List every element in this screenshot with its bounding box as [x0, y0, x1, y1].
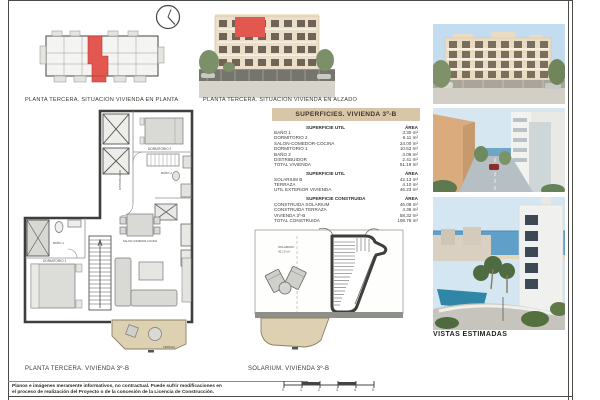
elevation-render — [199, 10, 335, 98]
caption-solarium: SOLARIUM. VIVIENDA 3º-B — [248, 366, 329, 372]
row-value: 108.76 m² — [397, 218, 418, 223]
internal-stair — [89, 236, 111, 310]
solarium-plan-drawing: SOLARIUM 42.13 m² — [245, 226, 410, 366]
bed-dorm1 — [31, 264, 82, 308]
titleblock-rule — [8, 381, 308, 382]
border-right-outer — [572, 0, 573, 400]
north-arrow-icon — [154, 3, 182, 31]
table-row: TOTAL CONSTRUIDA108.76 m² — [272, 218, 420, 223]
row-label: TOTAL VIVIENDA — [274, 162, 311, 167]
areas-table-sections: SUPERFICIE UTILÁREABAÑO 13.30 m²DORMITOR… — [272, 125, 420, 224]
terrace — [111, 319, 187, 353]
key-plan-drawing — [36, 20, 168, 94]
caption-situacion-planta: PLANTA TERCERA. SITUACION VIVIENDA EN PL… — [25, 97, 178, 103]
areas-table-title: SUPERFICIES. VIVIENDA 3º-B — [272, 108, 420, 121]
section-title: SUPERFICIE UTIL — [306, 171, 345, 176]
vistas-estimadas-label: VISTAS ESTIMADAS — [433, 331, 507, 338]
border-right-inner — [568, 0, 569, 400]
disclaimer-line2: el proceso de realización del Proyecto o… — [12, 390, 312, 396]
photo-building-front — [433, 24, 565, 104]
elevation-street — [199, 81, 335, 98]
solarium-area-label: 42.13 m² — [278, 250, 290, 254]
floor-plan-drawing: DORMITORIO 2 BAÑO 2 DISTRIBUIDOR BAÑO — [15, 108, 235, 366]
table-row: UTIL EXTERIOR VIVIENDA46.23 m² — [272, 187, 420, 192]
tv-unit — [182, 258, 191, 302]
bed-dorm2 — [140, 118, 183, 144]
room-label-dormitorio1: DORMITORIO 1 — [43, 259, 67, 263]
border-top — [8, 0, 572, 1]
photo-street-view — [433, 108, 565, 192]
table-row: TOTAL VIVIENDA51.19 m² — [272, 162, 420, 167]
room-label-bano1: BAÑO 1 — [53, 240, 64, 245]
row-label: TOTAL CONSTRUIDA — [274, 218, 320, 223]
scale-tick-label: 2 — [318, 388, 320, 392]
parapet — [255, 312, 403, 318]
areas-table: SUPERFICIES. VIVIENDA 3º-B SUPERFICIE UT… — [272, 108, 420, 223]
room-label-distribuidor: DISTRIBUIDOR — [118, 170, 122, 190]
disclaimer: Planos e imágenes meramente informativos… — [12, 384, 312, 396]
scale-tick-label: 3 — [336, 388, 338, 392]
solarium-terrace — [261, 318, 329, 350]
plan-sheet: PLANTA TERCERA. SITUACION VIVIENDA EN PL… — [0, 0, 600, 400]
scale-tick-label: 4 — [354, 388, 356, 392]
room-label-bano2: BAÑO 2 — [161, 170, 172, 175]
section-title: SUPERFICIE UTIL — [306, 125, 345, 130]
scale-tick-label: 5 — [372, 388, 374, 392]
caption-situacion-alzado: PLANTA TERCERA. SITUACION VIVIENDA EN AL… — [203, 97, 357, 103]
row-value: 51.19 m² — [400, 162, 418, 167]
row-label: UTIL EXTERIOR VIVIENDA — [274, 187, 331, 192]
highlighted-unit-elevation — [235, 17, 265, 37]
border-bottom — [8, 396, 572, 397]
elevation-perimeter-wall — [199, 69, 335, 81]
elevation-building — [215, 14, 319, 70]
photo-sea-view — [433, 197, 565, 330]
room-label-terraza: TERRAZA — [163, 345, 175, 349]
row-value: 46.23 m² — [400, 187, 418, 192]
border-left — [8, 0, 9, 400]
wardrobe — [147, 154, 179, 166]
stair-elevator-core — [103, 114, 129, 174]
room-label-salon: SALON-COMEDOR-COCINA — [123, 239, 157, 243]
round-table — [279, 282, 291, 294]
solarium-label: SOLARIUM — [278, 245, 294, 249]
room-label-dormitorio2: DORMITORIO 2 — [148, 147, 172, 151]
caption-planta-vivienda: PLANTA TERCERA. VIVIENDA 3º-B — [25, 366, 129, 372]
